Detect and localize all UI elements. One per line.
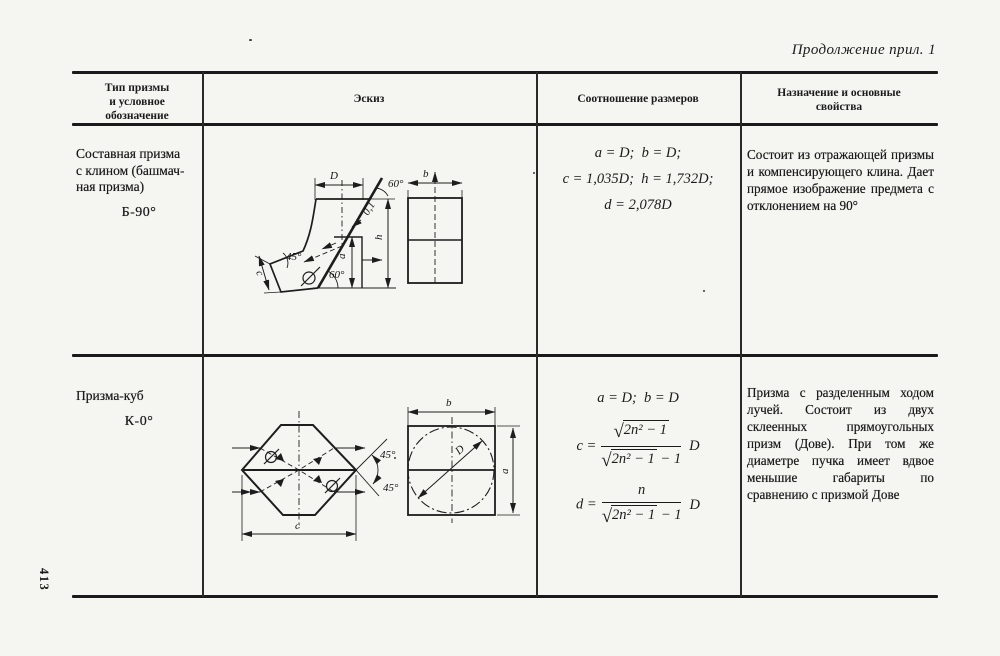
header-purpose-line: Назначение и основные — [740, 86, 938, 100]
formula-multiplier: D — [689, 497, 699, 513]
header-type-line: и условное — [74, 95, 200, 109]
angle-60-top: 60° — [388, 178, 404, 190]
column-divider-3 — [740, 72, 742, 597]
prism-outline — [270, 199, 370, 292]
header-type: Тип призмы и условное обозначение — [74, 81, 200, 123]
scan-speck — [394, 457, 396, 459]
row1-ratios-cell: a = D; b = D; c = 1,035D; h = 1,732D; d … — [540, 140, 736, 218]
angle-60-bottom: 60° — [329, 269, 345, 281]
formula-lhs: c = — [576, 438, 596, 454]
row1-type-line: Составная призма — [76, 146, 202, 163]
running-title: Продолжение прил. 1 — [792, 42, 936, 59]
dim-D-label: D — [329, 170, 338, 182]
scanned-page: Продолжение прил. 1 Тип призмы и условно… — [0, 0, 1000, 656]
gap-note: 0,1 — [360, 200, 377, 218]
angle-45-lower: 45° — [383, 482, 399, 494]
row1-type-cell: Составная призма с клином (башмач- ная п… — [76, 146, 202, 221]
dim-c-label: c — [253, 269, 266, 278]
row2-designation: К-0° — [76, 414, 202, 431]
formula-line: a = D; b = D — [540, 385, 736, 411]
row2-type-cell: Призма-куб К-0° — [76, 388, 202, 430]
formula-lhs: d = — [576, 496, 597, 512]
sketch-bashmach-prism: D 60° 0,1 a h 60° 45° c — [230, 150, 540, 320]
scan-speck — [533, 172, 535, 174]
scan-speck — [703, 290, 705, 292]
dim-b-label: b — [423, 168, 429, 180]
header-ratios: Соотношение размеров — [536, 92, 740, 106]
header-sketch: Эскиз — [202, 92, 536, 106]
row1-designation: Б-90° — [76, 205, 202, 222]
formula-fraction-d: d =n√2n² − 1 − 1D — [540, 482, 736, 528]
dim-b-label: b — [446, 397, 452, 409]
scan-speck — [249, 39, 252, 41]
row2-ratios-cell: a = D; b = D c =√2n² − 1√2n² − 1 − 1D d … — [540, 385, 736, 528]
row1-description: Состоит из отражающей призмы и компенсир… — [747, 146, 934, 214]
header-type-line: обозначение — [74, 109, 200, 123]
formula-line: d = 2,078D — [540, 192, 736, 218]
dim-c-label: c — [295, 520, 300, 532]
dim-h-label: h — [373, 234, 385, 240]
formula-multiplier: D — [689, 438, 699, 454]
formula-fraction-c: c =√2n² − 1√2n² − 1 − 1D — [540, 421, 736, 472]
row1-type-line: с клином (башмач- — [76, 163, 202, 180]
slant-face — [318, 178, 382, 288]
angle-45-upper: 45° — [380, 449, 396, 461]
dim-a-label: a — [499, 468, 511, 474]
dim-a-label: a — [336, 253, 348, 259]
row2-description: Призма с разделенным ходом лучей. Состои… — [747, 384, 934, 503]
page-number: 413 — [36, 568, 51, 591]
column-divider-1 — [202, 72, 204, 597]
surface-quality-icon — [301, 267, 320, 286]
header-purpose-line: свойства — [740, 100, 938, 114]
row1-type-line: ная призма) — [76, 179, 202, 196]
formula-line: a = D; b = D; — [540, 140, 736, 166]
row2-type-line: Призма-куб — [76, 388, 202, 405]
formula-line: c = 1,035D; h = 1,732D; — [540, 166, 736, 192]
angle-45-left: 45° — [286, 251, 302, 263]
sketch-cube-prism: 45° 45° c D b a — [230, 395, 530, 555]
surface-quality-icon — [264, 449, 279, 464]
header-purpose: Назначение и основные свойства — [740, 86, 938, 114]
header-type-line: Тип призмы — [74, 81, 200, 95]
